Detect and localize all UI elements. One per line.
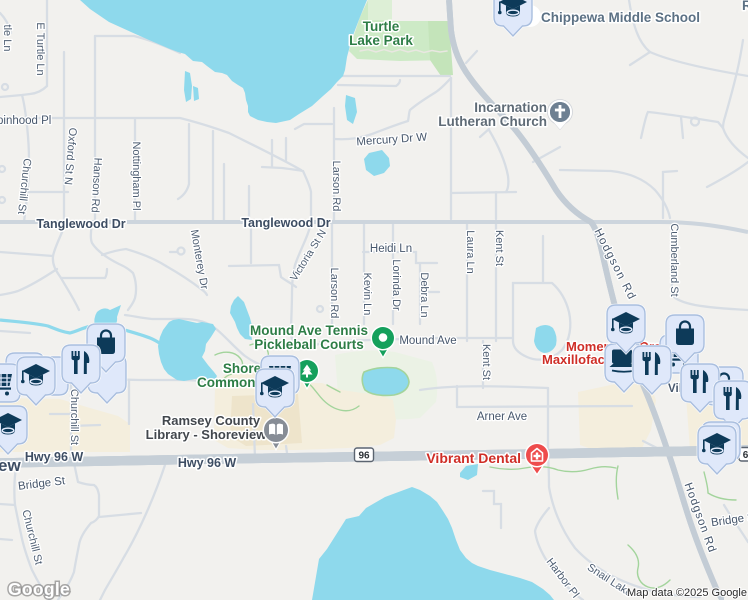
svg-text:Mound Ave: Mound Ave: [399, 335, 456, 347]
svg-text:tle Ln: tle Ln: [1, 25, 13, 52]
svg-text:Hwy 96 W: Hwy 96 W: [25, 450, 84, 464]
svg-text:ew: ew: [0, 456, 21, 475]
svg-text:Larson Rd: Larson Rd: [330, 161, 342, 212]
svg-text:Churchill St: Churchill St: [68, 389, 80, 445]
svg-text:Arner Ave: Arner Ave: [477, 411, 527, 423]
svg-text:Hwy 96 W: Hwy 96 W: [178, 456, 237, 470]
svg-text:Incarnation: Incarnation: [474, 100, 547, 115]
svg-text:Laura Ln: Laura Ln: [464, 230, 476, 273]
svg-text:pinhood Pl: pinhood Pl: [0, 115, 51, 127]
svg-text:Library - Shoreview: Library - Shoreview: [146, 427, 268, 442]
svg-text:Nottingham Pl: Nottingham Pl: [130, 141, 142, 210]
svg-text:Larson Rd: Larson Rd: [328, 268, 340, 319]
svg-text:E Turtle Ln: E Turtle Ln: [34, 22, 46, 75]
svg-text:Lorinda Dr: Lorinda Dr: [390, 259, 402, 311]
svg-text:Kent St: Kent St: [480, 344, 492, 380]
svg-text:Chippewa Middle School: Chippewa Middle School: [541, 10, 700, 25]
svg-text:Commons: Commons: [197, 375, 263, 390]
svg-text:Lutheran Church: Lutheran Church: [438, 114, 547, 129]
svg-text:Kevin Ln: Kevin Ln: [361, 273, 373, 316]
svg-text:Turtle: Turtle: [363, 19, 400, 34]
svg-text:Map data ©2025 Google: Map data ©2025 Google: [627, 587, 747, 599]
svg-text:Ramsey County: Ramsey County: [162, 413, 261, 428]
svg-text:Tanglewood Dr: Tanglewood Dr: [36, 217, 125, 231]
svg-text:Lake Park: Lake Park: [349, 33, 413, 48]
svg-text:Tanglewood Dr: Tanglewood Dr: [241, 216, 330, 230]
svg-text:Debra Ln: Debra Ln: [418, 272, 430, 317]
svg-text:Vibrant Dental: Vibrant Dental: [426, 450, 521, 466]
svg-text:6: 6: [743, 450, 748, 461]
svg-text:Google: Google: [8, 579, 70, 599]
svg-text:R: R: [742, 0, 748, 13]
svg-text:Pickleball Courts: Pickleball Courts: [254, 337, 364, 352]
svg-text:Mound Ave Tennis: Mound Ave Tennis: [250, 323, 368, 338]
svg-text:Kent St: Kent St: [493, 230, 505, 266]
svg-text:96: 96: [358, 451, 370, 462]
svg-text:Cumberland St: Cumberland St: [668, 223, 680, 296]
svg-text:Heidi Ln: Heidi Ln: [370, 243, 412, 255]
